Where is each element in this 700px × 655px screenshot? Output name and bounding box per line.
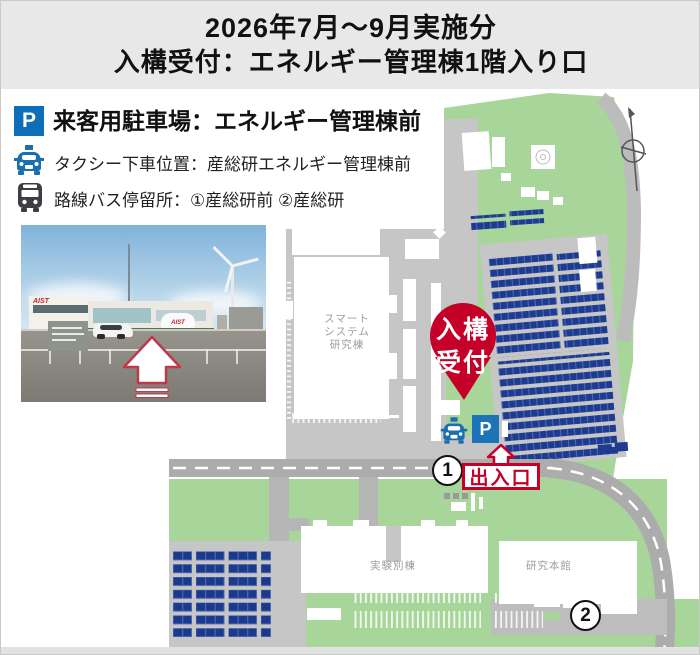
solar-farm xyxy=(479,234,626,468)
map-taxi-icon xyxy=(439,417,469,444)
experiment-annex-building xyxy=(301,520,488,593)
bus-stop-1-marker: 1 xyxy=(432,455,463,486)
research-main-building xyxy=(499,541,637,614)
reception-pin-line1: 入構 xyxy=(425,310,501,346)
reception-pin: 入構 受付 xyxy=(425,302,501,402)
header-reception: 入構受付：エネルギー管理棟1階入り口 xyxy=(114,46,588,78)
map-parking-marker: P xyxy=(472,415,499,443)
reception-pin-line2: 受付 xyxy=(425,343,501,379)
bus-stop-2-marker: 2 xyxy=(570,600,601,631)
campus-map: スマート システム 研究棟 実験別棟 研究本館 入構 受付 xyxy=(1,89,700,655)
campus-map-graphic xyxy=(1,89,700,655)
smart-system-label: スマート システム 研究棟 xyxy=(307,313,387,352)
research-main-label: 研究本館 xyxy=(509,560,589,573)
solar-array-southwest xyxy=(173,548,271,637)
experiment-annex-label: 実験別棟 xyxy=(353,560,433,573)
access-map-page: 2026年7月〜9月実施分 入構受付：エネルギー管理棟1階入り口 P 来客用駐車… xyxy=(0,0,700,655)
header-period: 2026年7月〜9月実施分 xyxy=(205,12,497,44)
gate-label: 出入口 xyxy=(462,463,540,490)
header: 2026年7月〜9月実施分 入構受付：エネルギー管理棟1階入り口 xyxy=(1,1,700,89)
